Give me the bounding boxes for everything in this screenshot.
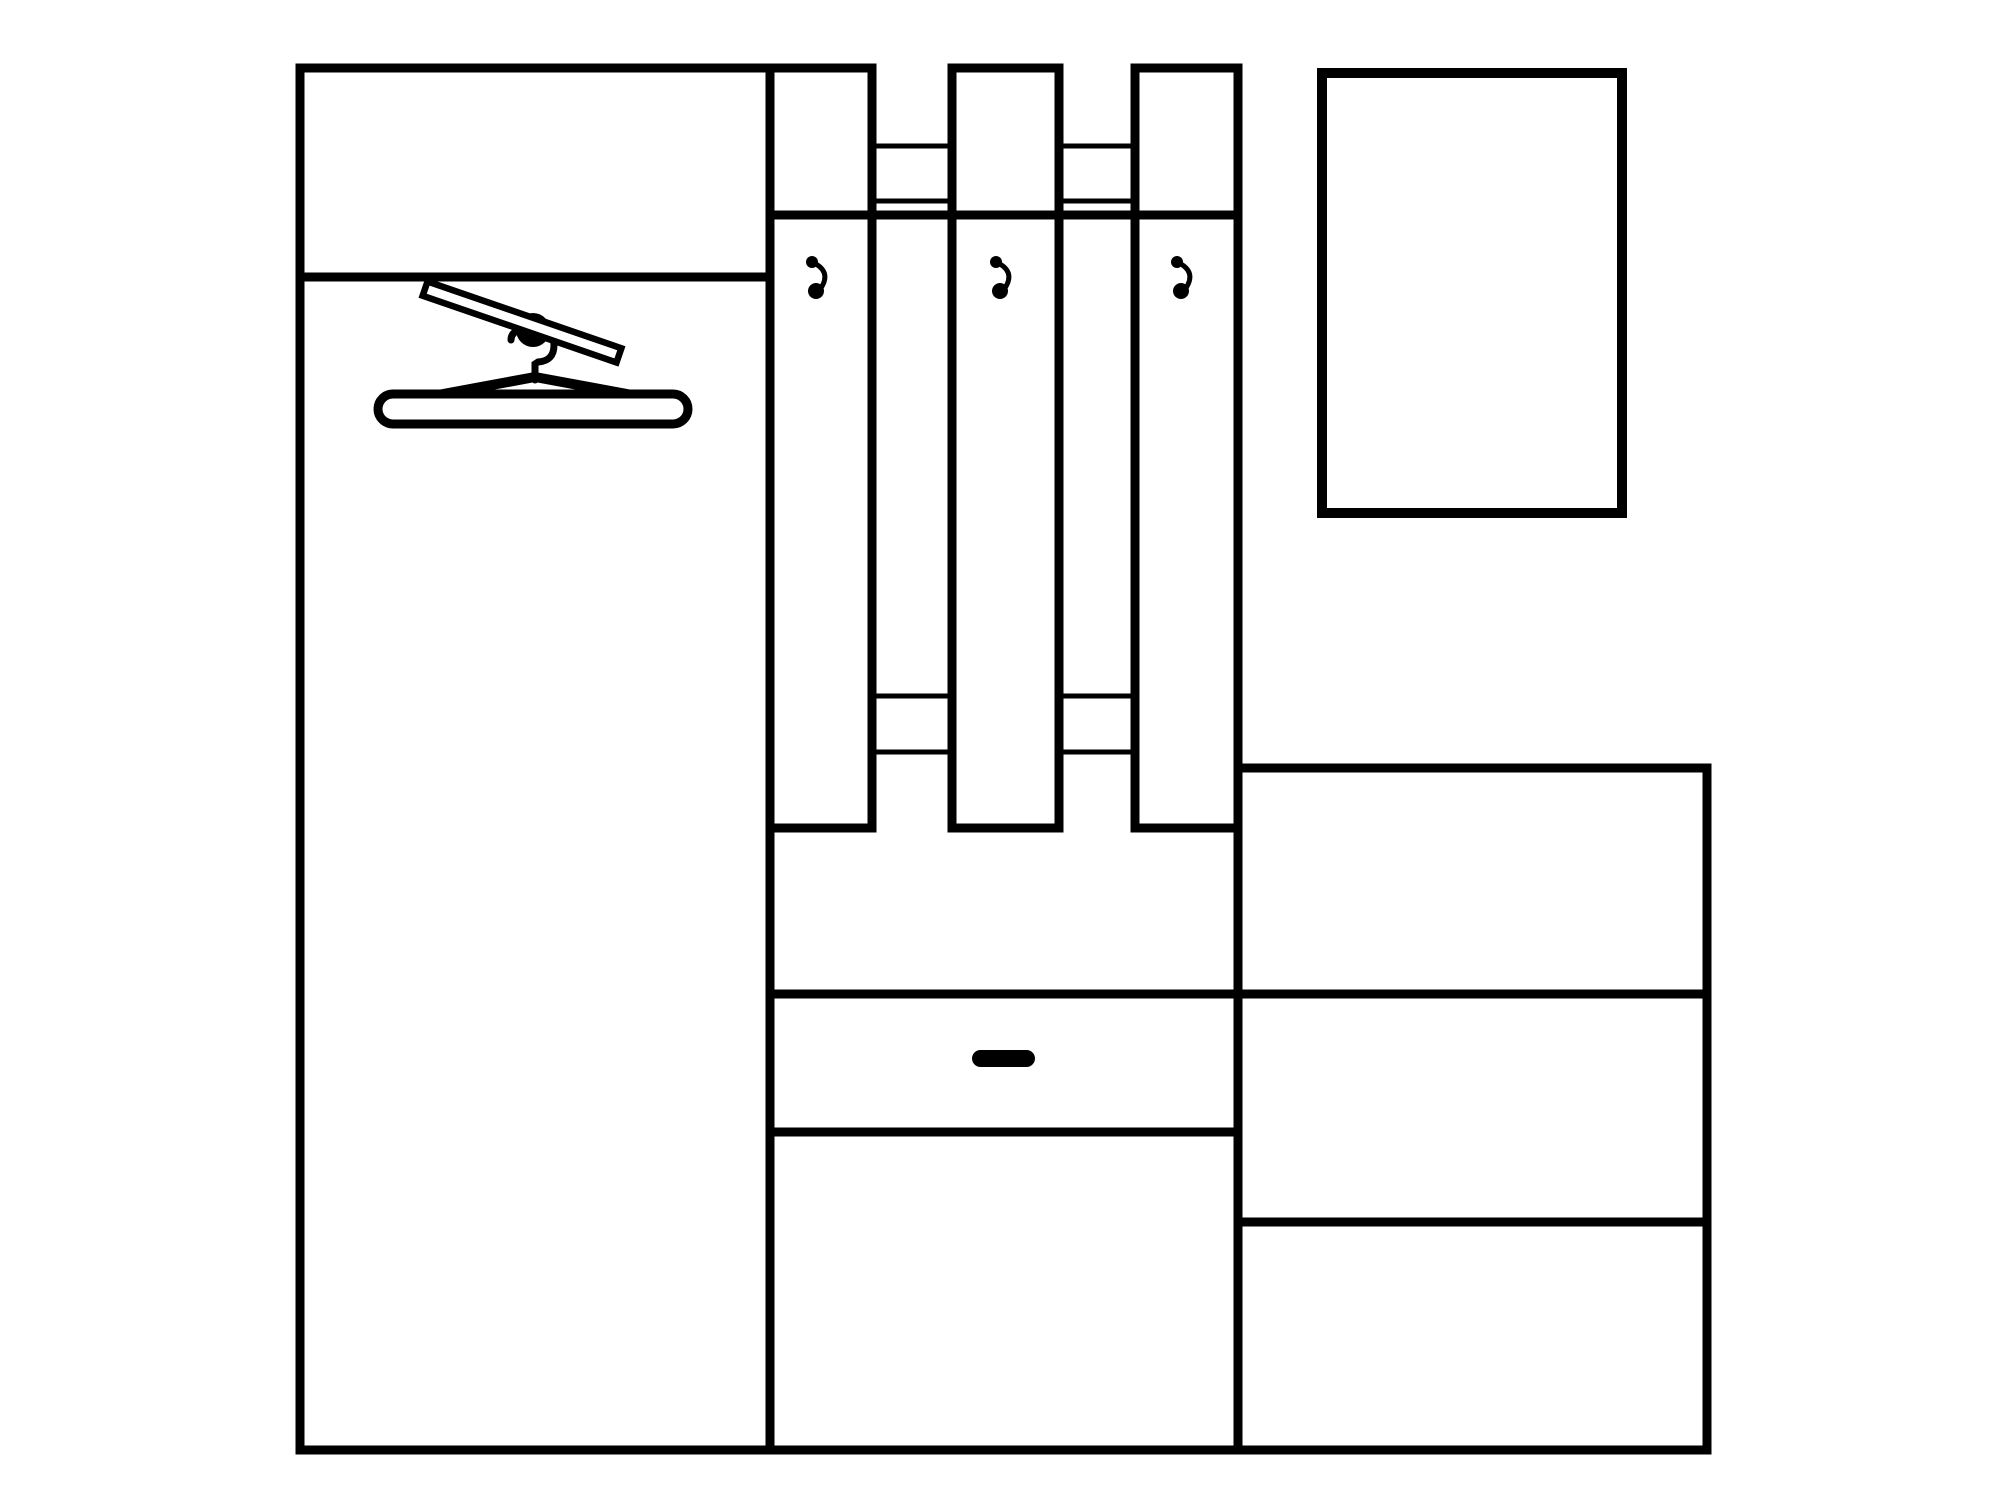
- dresser-body: [1238, 768, 1707, 1450]
- mirror: [1322, 73, 1622, 513]
- coat-panel-middle: [952, 68, 1059, 828]
- coat-panel-right: [1135, 68, 1238, 828]
- hanger-bar-icon: [378, 394, 688, 424]
- hallway-furniture-diagram: [0, 0, 2000, 1500]
- cabinet-drawer-handle: [972, 1050, 1035, 1067]
- coat-hook-1-bottom-dot-icon: [808, 283, 824, 299]
- coat-panel-left: [770, 68, 872, 828]
- furniture-drawing-canvas: [0, 0, 2000, 1500]
- coat-hook-2-bottom-dot-icon: [992, 283, 1008, 299]
- coat-hook-3-bottom-dot-icon: [1173, 283, 1189, 299]
